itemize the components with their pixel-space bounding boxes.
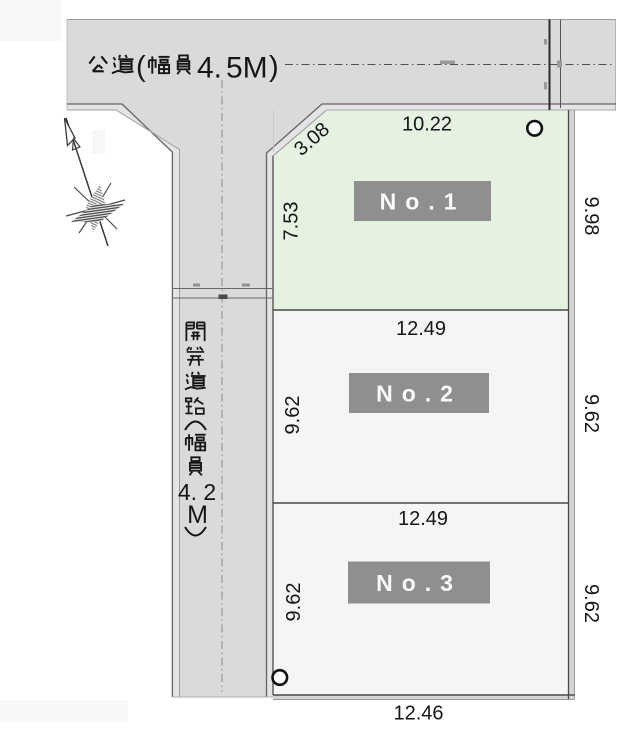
svg-text:9.62: 9.62 [580,394,602,433]
svg-text:9.62: 9.62 [580,584,602,623]
svg-text:5M: 5M [226,52,268,85]
svg-text:12.46: 12.46 [393,703,443,725]
svg-text:(: ( [136,51,146,83]
svg-text:): ) [269,51,279,83]
svg-text:M: M [187,501,208,529]
svg-text:7.53: 7.53 [281,202,303,241]
svg-text:9.98: 9.98 [580,197,602,236]
svg-text:9.62: 9.62 [283,583,305,622]
svg-text:No.2: No.2 [376,381,462,407]
svg-text:No.1: No.1 [380,189,466,215]
svg-text:No.3: No.3 [376,570,462,596]
svg-text:10.22: 10.22 [402,114,452,136]
svg-text:12.49: 12.49 [398,508,448,530]
svg-text:9.62: 9.62 [282,396,304,435]
svg-text:4.: 4. [197,52,222,85]
svg-text:12.49: 12.49 [396,318,446,340]
